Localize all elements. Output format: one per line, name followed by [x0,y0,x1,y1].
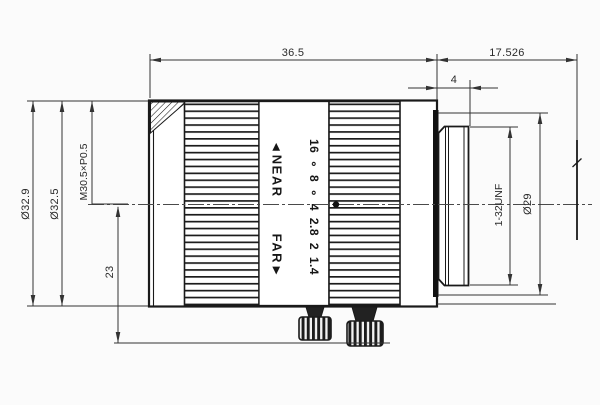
iris-lock-screw-neck [352,307,377,321]
far-marking: FAR► [270,234,285,279]
focus-lock-screw-head [299,317,331,340]
dim-thread-length: 4 [451,74,457,86]
focus-ring-knurl [185,102,260,306]
aperture-index-dot [333,201,339,207]
near-marking: ◄NEAR [270,140,285,197]
aperture-scale-marking: 16 ∘ 8 ∘ 4 2.8 2 1.4 [307,139,321,275]
aperture-ring-knurl [329,102,400,306]
dim-mount-thread: 1-32UNF [493,184,505,227]
dim-filter-thread: M30.5×P0.5 [78,143,90,200]
dim-axis-to-bottom: 23 [104,266,116,279]
image-plane-mark [573,140,582,240]
iris-lock-screw-head [347,321,383,346]
focus-lock-screw-neck [306,307,324,317]
technical-drawing-canvas: ◄NEAR FAR► 16 ∘ 8 ∘ 4 2.8 2 1.4 [0,0,600,400]
dim-body-diameter: Ø32.5 [49,188,61,219]
dim-front-diameter: Ø32.9 [20,188,32,219]
dim-body-length: 36.5 [282,47,305,59]
lens-drawing: ◄NEAR FAR► 16 ∘ 8 ∘ 4 2.8 2 1.4 [0,0,600,400]
lock-screws [299,307,383,346]
dim-mount-diameter: Ø29 [522,193,534,215]
dim-flange-focal-distance: 17.526 [489,47,524,59]
